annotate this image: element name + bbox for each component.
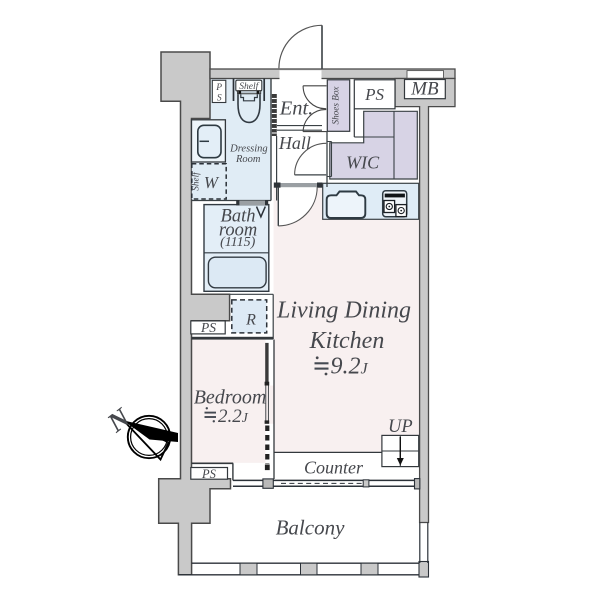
svg-text:(1115): (1115) (220, 235, 256, 250)
svg-text:UP: UP (388, 417, 413, 437)
svg-text:PS: PS (364, 85, 384, 104)
svg-text:Balcony: Balcony (276, 516, 345, 540)
svg-text:Room: Room (235, 154, 261, 165)
svg-text:Ent.: Ent. (279, 98, 314, 120)
svg-text:S: S (217, 94, 222, 104)
svg-text:Shoes Box: Shoes Box (331, 86, 341, 125)
svg-text:W: W (204, 173, 220, 192)
svg-text:MB: MB (410, 79, 439, 100)
svg-text:Counter: Counter (304, 458, 364, 478)
svg-text:Kitchen: Kitchen (309, 328, 385, 354)
svg-text:Shelf: Shelf (190, 171, 200, 191)
svg-text:Living Dining: Living Dining (276, 298, 411, 324)
svg-text:PS: PS (200, 320, 216, 335)
svg-text:2.2J: 2.2J (218, 406, 249, 427)
svg-text:R: R (245, 312, 256, 329)
svg-text:Shelf: Shelf (239, 81, 259, 92)
svg-text:Hall: Hall (278, 133, 311, 153)
svg-text:PS: PS (201, 467, 217, 481)
svg-text:WIC: WIC (346, 153, 380, 173)
svg-text:P: P (215, 83, 222, 93)
